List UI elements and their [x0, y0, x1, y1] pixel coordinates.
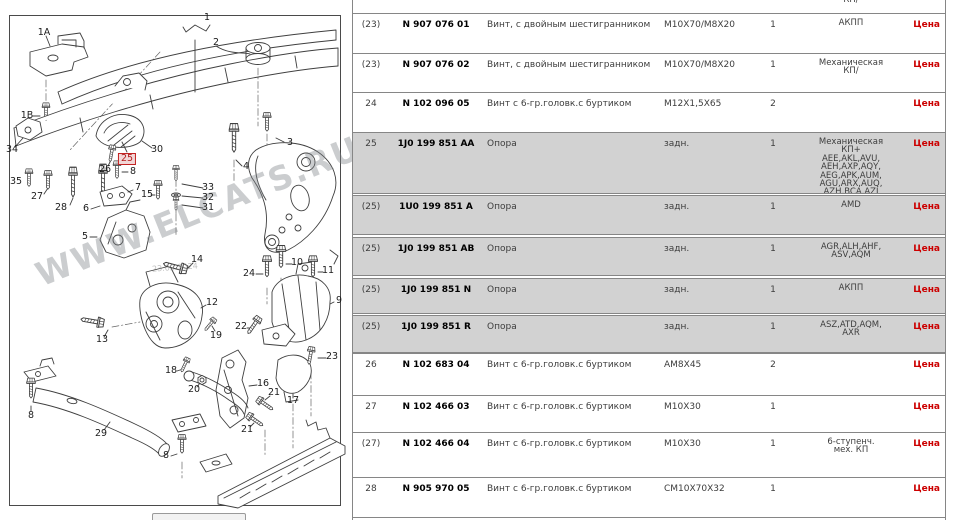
part-size: задн.: [655, 238, 751, 275]
price-cell: [907, 0, 945, 13]
row-position: 24: [353, 93, 389, 132]
price-link[interactable]: Цена: [913, 139, 940, 149]
price-link[interactable]: Цена: [913, 402, 940, 412]
price-link[interactable]: Цена: [913, 244, 940, 254]
part-size: CM10X70X32: [655, 478, 751, 517]
price-cell: Цена: [907, 133, 945, 193]
part-callout-17-33[interactable]: 17: [287, 396, 299, 406]
price-link[interactable]: Цена: [913, 20, 940, 30]
part-number: 1U0 199 851 A: [389, 196, 483, 234]
part-callout-3-14[interactable]: 3: [287, 138, 293, 148]
part-description: Винт, с двойным шестигранником: [483, 14, 655, 53]
gearbox-mount-drawing: [104, 263, 215, 348]
part-number: 1J0 199 851 AA: [389, 133, 483, 193]
support-tube-drawing: [24, 358, 206, 458]
part-callout-27-6[interactable]: 27: [31, 192, 43, 202]
row-position: 25: [353, 133, 389, 193]
part-callout-22-28[interactable]: 22: [235, 322, 247, 332]
row-position: (25): [353, 279, 389, 313]
part-number: 1J0 199 851 N: [389, 279, 483, 313]
part-models: AMD: [795, 196, 907, 234]
price-cell: Цена: [907, 316, 945, 352]
row-position: 27: [353, 396, 389, 432]
part-description: Винт с 6-гр.головк.с буртиком: [483, 396, 655, 432]
part-callout-1B-1[interactable]: 1B: [21, 111, 34, 121]
part-callout-13-27[interactable]: 13: [96, 335, 108, 345]
price-cell: Цена: [907, 14, 945, 53]
table-row: 27N 102 466 03Винт с 6-гр.головк.с бурти…: [353, 395, 945, 432]
price-cell: Цена: [907, 354, 945, 395]
part-qty: 1: [751, 279, 795, 313]
part-callout-24-22[interactable]: 24: [243, 269, 255, 279]
part-callout-20-35[interactable]: 20: [188, 385, 200, 395]
part-callout-11-24[interactable]: 11: [322, 266, 334, 276]
part-description: Опора: [483, 133, 655, 193]
part-callout-35-5[interactable]: 35: [10, 177, 22, 187]
part-callout-29-37[interactable]: 29: [95, 429, 107, 439]
part-models: АКПП: [795, 279, 907, 313]
part-number: N 102 466 04: [389, 433, 483, 477]
row-position: (23): [353, 14, 389, 53]
part-size: [655, 0, 751, 13]
part-callout-12-26[interactable]: 12: [206, 298, 218, 308]
part-qty: 2: [751, 354, 795, 395]
part-callout-8-38[interactable]: 8: [163, 451, 169, 461]
part-callout-28-7[interactable]: 28: [55, 203, 67, 213]
part-callout-34-4[interactable]: 34: [6, 145, 18, 155]
part-callout-21-32[interactable]: 21: [268, 388, 280, 398]
assembly-axes: [46, 52, 313, 478]
part-qty: 2: [751, 93, 795, 132]
price-cell: Цена: [907, 196, 945, 234]
part-callout-1A-0[interactable]: 1A: [38, 28, 51, 38]
part-qty: 1: [751, 196, 795, 234]
part-models: КП/: [795, 0, 907, 13]
part-description: Опора: [483, 196, 655, 234]
part-size: AM8X45: [655, 354, 751, 395]
part-callout-8-10[interactable]: 8: [130, 167, 136, 177]
table-row: 251J0 199 851 AAОпоразадн.1Механическая …: [353, 132, 945, 194]
part-description: Винт, с двойным шестигранником: [483, 54, 655, 92]
part-description: Винт с 6-гр.головк.с буртиком: [483, 93, 655, 132]
part-callout-26-8[interactable]: 26: [99, 165, 111, 175]
part-size: задн.: [655, 279, 751, 313]
part-number: N 102 466 03: [389, 396, 483, 432]
price-cell: Цена: [907, 433, 945, 477]
part-qty: 1: [751, 396, 795, 432]
price-cell: Цена: [907, 54, 945, 92]
part-description: Винт с 6-гр.головк.с буртиком: [483, 354, 655, 395]
parts-catalog-page: WWW.ELCATS.RU 23.02.2024 1A1B12343527282…: [0, 0, 960, 520]
part-models: ASZ,ATD,AQM, AXR: [795, 316, 907, 352]
table-row: (25)1J0 199 851 NОпоразадн.1АКППЦена: [353, 278, 945, 314]
part-number: N 102 683 04: [389, 354, 483, 395]
part-qty: 1: [751, 316, 795, 352]
part-qty: 1: [751, 14, 795, 53]
row-position: 26: [353, 354, 389, 395]
part-size: M10X30: [655, 433, 751, 477]
part-callout-21-39[interactable]: 21: [241, 425, 253, 435]
part-qty: 1: [751, 238, 795, 275]
price-link[interactable]: Цена: [913, 360, 940, 370]
price-link[interactable]: Цена: [913, 322, 940, 332]
part-callout-18-34[interactable]: 18: [165, 366, 177, 376]
part-models: [795, 396, 907, 432]
price-cell: Цена: [907, 93, 945, 132]
table-row: 24N 102 096 05Винт с 6-гр.головк.с бурти…: [353, 92, 945, 132]
table-row: (27)N 102 466 04Винт с 6-гр.головк.с бур…: [353, 432, 945, 477]
part-models: [795, 354, 907, 395]
part-size: M10X70/M8X20: [655, 14, 751, 53]
row-position: (25): [353, 316, 389, 352]
price-cell: Цена: [907, 478, 945, 517]
part-description: Винт с 6-гр.головк.с буртиком: [483, 433, 655, 477]
part-models: [795, 93, 907, 132]
part-number: N 905 970 05: [389, 478, 483, 517]
part-size: M12X1,5X65: [655, 93, 751, 132]
part-models: 6-ступенч. мех. КП: [795, 433, 907, 477]
table-row: (23)N 907 076 02Винт, с двойным шестигра…: [353, 53, 945, 92]
body-rail-drawing: [200, 420, 345, 508]
row-position: (25): [353, 238, 389, 275]
part-description: Опора: [483, 279, 655, 313]
table-row: (25)1J0 199 851 RОпоразадн.1ASZ,ATD,AQM,…: [353, 315, 945, 353]
row-position: (23): [353, 54, 389, 92]
part-number: [389, 0, 483, 13]
part-size: задн.: [655, 133, 751, 193]
part-description: Винт с 6-гр.головк.с буртиком: [483, 478, 655, 517]
price-link[interactable]: Цена: [913, 99, 940, 109]
part-size: M10X70/M8X20: [655, 54, 751, 92]
part-callout-8-36[interactable]: 8: [28, 411, 34, 421]
part-qty: 1: [751, 54, 795, 92]
part-description: [483, 0, 655, 13]
part-number: N 907 076 02: [389, 54, 483, 92]
table-row: 28N 905 970 05Винт с 6-гр.головк.с бурти…: [353, 477, 945, 518]
part-models: Механическая КП+ AEE,AKL,AVU, AEH,AXP,AQ…: [795, 133, 907, 193]
table-row: 26N 102 683 04Винт с 6-гр.головк.с бурти…: [353, 353, 945, 395]
part-size: M10X30: [655, 396, 751, 432]
nav-button-partial[interactable]: [152, 513, 246, 520]
row-position: 28: [353, 478, 389, 517]
part-callout-5-20[interactable]: 5: [82, 232, 88, 242]
part-size: задн.: [655, 196, 751, 234]
parts-table: КП/(23)N 907 076 01Винт, с двойным шести…: [352, 0, 946, 520]
part-models: AGR,ALH,AHF, ASV,AQM: [795, 238, 907, 275]
row-position: (27): [353, 433, 389, 477]
table-row: (25)1U0 199 851 AОпоразадн.1AMDЦена: [353, 195, 945, 235]
part-qty: 1: [751, 133, 795, 193]
part-number: N 102 096 05: [389, 93, 483, 132]
price-link[interactable]: Цена: [913, 439, 940, 449]
part-callout-4-15[interactable]: 4: [243, 162, 249, 172]
part-callout-25-9[interactable]: 25: [118, 153, 136, 165]
table-row: КП/: [353, 0, 945, 13]
part-models: Механическая КП/: [795, 54, 907, 92]
price-cell: Цена: [907, 279, 945, 313]
bracket-1a-drawing: [30, 33, 88, 116]
part-callout-30-13[interactable]: 30: [151, 145, 163, 155]
part-callout-23-30[interactable]: 23: [326, 352, 338, 362]
part-callout-6-19[interactable]: 6: [83, 204, 89, 214]
table-row: (25)1J0 199 851 ABОпоразадн.1AGR,ALH,AHF…: [353, 237, 945, 276]
part-callout-2-3[interactable]: 2: [213, 38, 219, 48]
price-link[interactable]: Цена: [913, 202, 940, 212]
row-position: (25): [353, 196, 389, 234]
part-number: N 907 076 01: [389, 14, 483, 53]
price-link[interactable]: Цена: [913, 60, 940, 70]
control-arm-drawing: [249, 143, 338, 264]
part-qty: 1: [751, 433, 795, 477]
part-models: АКПП: [795, 14, 907, 53]
part-callout-10-23[interactable]: 10: [291, 258, 303, 268]
part-size: задн.: [655, 316, 751, 352]
part-callout-19-29[interactable]: 19: [210, 331, 222, 341]
part-callout-14-21[interactable]: 14: [191, 255, 203, 265]
price-cell: Цена: [907, 238, 945, 275]
part-description: Опора: [483, 238, 655, 275]
price-cell: Цена: [907, 396, 945, 432]
part-number: 1J0 199 851 R: [389, 316, 483, 352]
part-callout-31-18[interactable]: 31: [202, 203, 214, 213]
part-number: 1J0 199 851 AB: [389, 238, 483, 275]
price-link[interactable]: Цена: [913, 484, 940, 494]
table-row: (23)N 907 076 01Винт, с двойным шестигра…: [353, 13, 945, 53]
part-callout-15-12[interactable]: 15: [141, 190, 153, 200]
part-description: Опора: [483, 316, 655, 352]
part-models: [795, 478, 907, 517]
part-qty: [751, 0, 795, 13]
part-callout-9-25[interactable]: 9: [336, 296, 342, 306]
price-link[interactable]: Цена: [913, 285, 940, 295]
diagram-panel: WWW.ELCATS.RU 23.02.2024 1A1B12343527282…: [0, 0, 348, 520]
subframe-drawing: [14, 25, 338, 148]
row-position: [353, 0, 389, 13]
part-callout-1-2[interactable]: 1: [204, 13, 210, 23]
part-qty: 1: [751, 478, 795, 517]
